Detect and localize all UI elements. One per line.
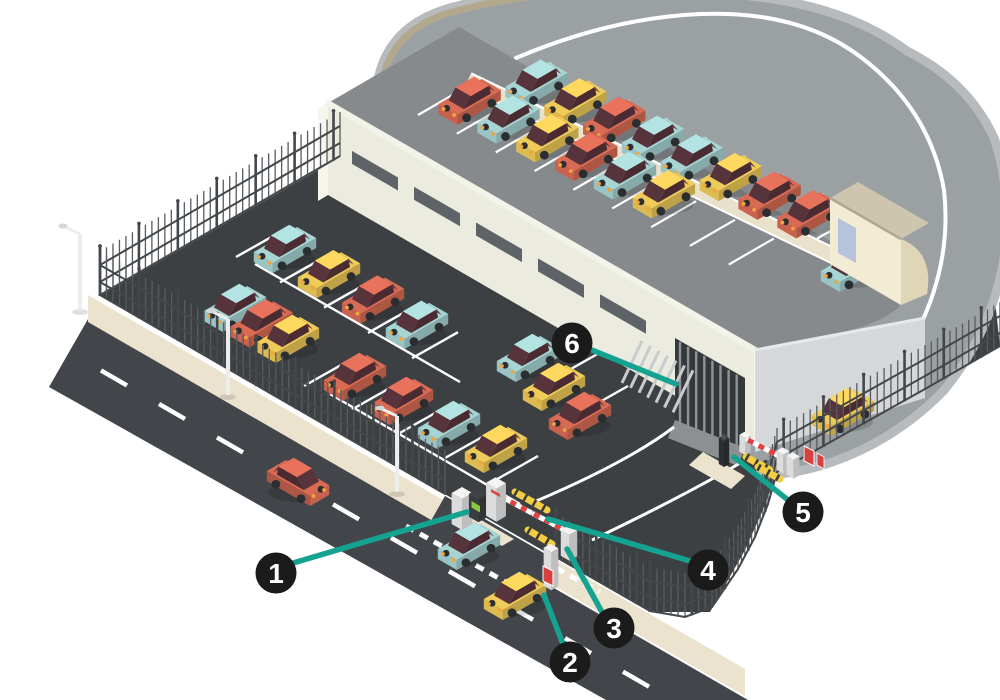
callout-2-number: 2 [562,647,578,678]
callout-3-number: 3 [606,613,622,644]
callout-1-number: 1 [268,558,284,589]
callout-4-number: 4 [700,555,716,586]
illustration-parking-facility: 1 2 3 4 5 6 [0,0,1000,700]
callout-6-number: 6 [564,328,580,359]
scene-canvas: 1 2 3 4 5 6 [0,0,1000,700]
callout-5-number: 5 [795,497,811,528]
